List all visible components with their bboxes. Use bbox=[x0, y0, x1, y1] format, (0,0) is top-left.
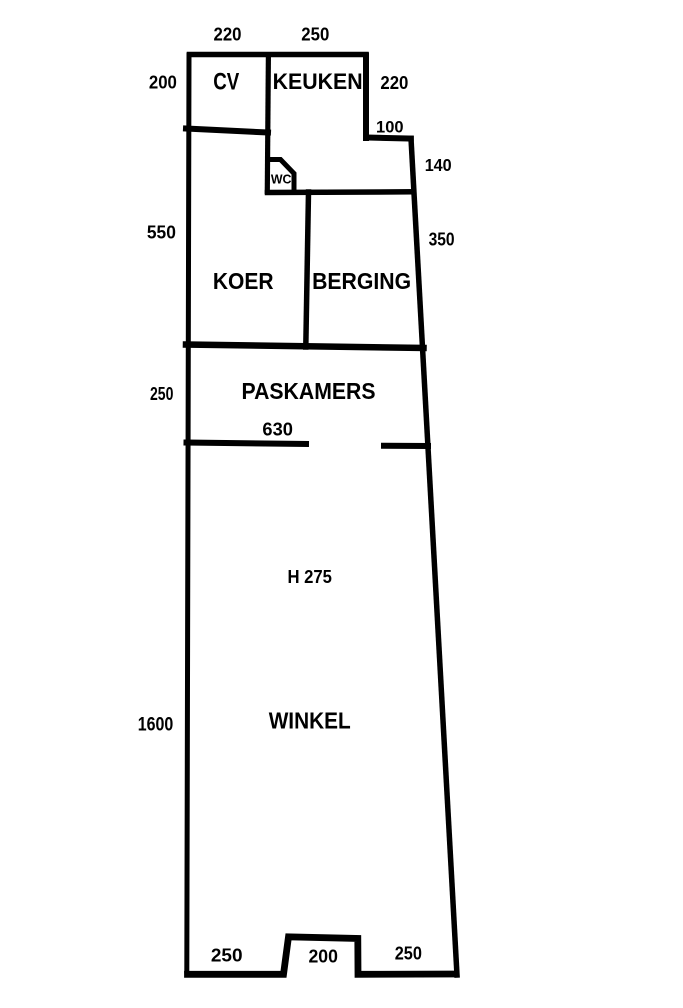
svg-text:220: 220 bbox=[380, 73, 408, 93]
svg-text:200: 200 bbox=[149, 73, 177, 93]
svg-text:PASKAMERS: PASKAMERS bbox=[242, 378, 376, 404]
svg-text:H 275: H 275 bbox=[287, 566, 332, 587]
svg-text:200: 200 bbox=[309, 947, 338, 967]
svg-text:220: 220 bbox=[214, 25, 242, 45]
svg-text:WINKEL: WINKEL bbox=[269, 708, 351, 734]
svg-text:1600: 1600 bbox=[138, 715, 174, 736]
svg-text:BERGING: BERGING bbox=[312, 268, 411, 294]
svg-text:250: 250 bbox=[211, 945, 243, 965]
svg-text:CV: CV bbox=[213, 69, 239, 96]
svg-text:550: 550 bbox=[147, 223, 176, 243]
svg-text:250: 250 bbox=[301, 25, 329, 45]
svg-text:100: 100 bbox=[376, 118, 404, 137]
svg-text:350: 350 bbox=[429, 230, 455, 250]
svg-text:250: 250 bbox=[395, 943, 422, 963]
svg-text:250: 250 bbox=[150, 384, 173, 404]
svg-text:WC: WC bbox=[271, 171, 292, 186]
svg-text:KEUKEN: KEUKEN bbox=[273, 69, 363, 94]
svg-text:630: 630 bbox=[262, 419, 293, 439]
svg-text:140: 140 bbox=[425, 155, 452, 175]
svg-text:KOER: KOER bbox=[213, 268, 274, 294]
